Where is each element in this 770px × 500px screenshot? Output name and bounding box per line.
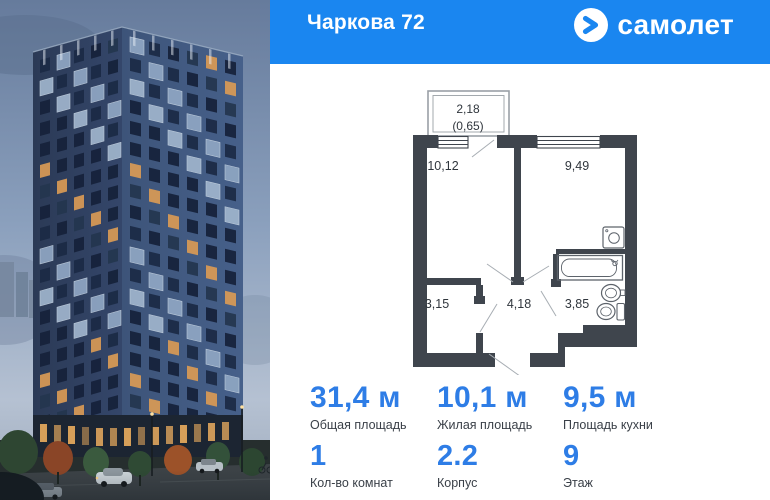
brand-logo[interactable]: самолет xyxy=(574,8,734,42)
stat-total-area-label: Общая площадь xyxy=(310,418,407,432)
stat-building-value: 2.2 xyxy=(437,442,478,471)
stat-building: 2.2 Корпус xyxy=(437,442,478,490)
building-photo xyxy=(0,0,270,500)
stat-room-count-value: 1 xyxy=(310,442,393,471)
stat-living-area: 10,1 м Жилая площадь xyxy=(437,383,532,432)
stat-kitchen-area-value: 9,5 м xyxy=(563,383,653,413)
washing-machine-icon xyxy=(603,227,624,248)
ground-scene xyxy=(0,405,270,500)
stat-kitchen-area-label: Площадь кухни xyxy=(563,418,653,432)
stat-total-area: 31,4 м Общая площадь xyxy=(310,383,407,432)
stat-living-area-label: Жилая площадь xyxy=(437,418,532,432)
listing-card: Чаркова 72 самолет xyxy=(0,0,770,500)
brand-name: самолет xyxy=(617,8,734,42)
header-bar: Чаркова 72 самолет xyxy=(270,0,770,64)
room-wardrobe-label: 3,15 xyxy=(425,297,449,311)
balcony-coef-label: (0,65) xyxy=(452,119,483,133)
stat-floor-label: Этаж xyxy=(563,476,593,490)
floor-plan: 2,18 (0,65) 10,12 9,49 3,15 4,18 3,85 xyxy=(405,85,695,375)
balcony-size-label: 2,18 xyxy=(456,102,480,116)
project-title: Чаркова 72 xyxy=(307,11,425,35)
toilet-icon xyxy=(597,304,625,321)
sink-icon xyxy=(602,285,626,302)
room-bath-label: 3,85 xyxy=(565,297,589,311)
stat-building-label: Корпус xyxy=(437,476,478,490)
room-bedroom-label: 9,49 xyxy=(565,159,589,173)
stat-room-count: 1 Кол-во комнат xyxy=(310,442,393,490)
samolet-logo-icon xyxy=(574,8,608,42)
stat-living-area-value: 10,1 м xyxy=(437,383,532,413)
stat-floor: 9 Этаж xyxy=(563,442,593,490)
room-hall-label: 4,18 xyxy=(507,297,531,311)
bathtub-icon xyxy=(558,256,623,281)
stat-floor-value: 9 xyxy=(563,442,593,471)
stat-kitchen-area: 9,5 м Площадь кухни xyxy=(563,383,653,432)
stat-room-count-label: Кол-во комнат xyxy=(310,476,393,490)
room-living-label: 10,12 xyxy=(427,159,458,173)
stat-total-area-value: 31,4 м xyxy=(310,383,407,413)
